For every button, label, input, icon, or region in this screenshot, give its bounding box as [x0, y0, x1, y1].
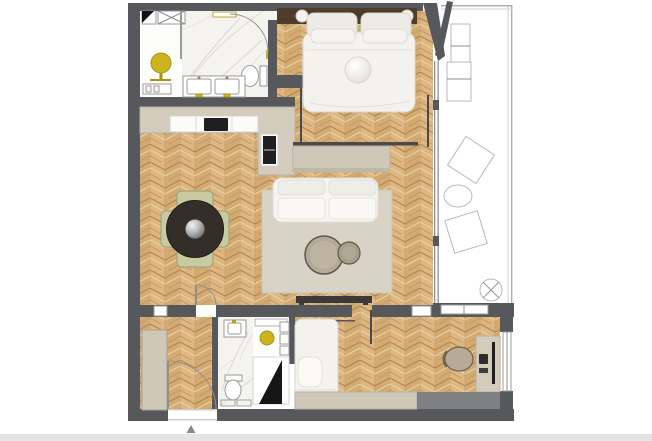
- wall-niche: [154, 306, 167, 316]
- tv-console-foot-left: [299, 303, 304, 305]
- door-gap-bedroom2: [352, 305, 372, 317]
- toilet2: [225, 380, 241, 400]
- coffee-table-small-top: [342, 246, 356, 260]
- cooktop: [204, 118, 228, 131]
- tv-console: [296, 296, 372, 303]
- gold-stool-dressing: [151, 53, 171, 73]
- wall-hall-bath2: [212, 317, 218, 409]
- faucet-left: [198, 77, 201, 80]
- bed-second-pillow: [298, 357, 322, 387]
- pillow-front-left: [311, 29, 355, 43]
- partition-dressing: [180, 11, 182, 59]
- gray-unit: [417, 392, 500, 409]
- dressing-bench-box2: [154, 86, 159, 92]
- oven-handle: [264, 149, 275, 151]
- wall-bath-bedroom: [268, 20, 277, 97]
- bench-cabinet: [295, 392, 417, 409]
- glass-wall-outer: [434, 61, 435, 303]
- sofa-seat-right: [329, 198, 376, 219]
- laptop: [479, 354, 488, 364]
- wall-middle: [140, 305, 433, 317]
- round-side-table: [444, 185, 472, 207]
- sliding-track-right: [427, 95, 429, 147]
- gold-accent-1: [196, 94, 202, 97]
- glass-mullion-2: [433, 236, 439, 246]
- wall-shelf-2: [280, 334, 289, 344]
- glass-mullion-1: [433, 100, 439, 110]
- sink-gold-dot: [233, 320, 236, 323]
- entry-door-leaf: [167, 361, 169, 409]
- keyboard: [479, 368, 488, 373]
- stool-base: [150, 79, 171, 81]
- dressing-bench-box1: [146, 86, 151, 92]
- glass-wall-inner: [438, 61, 439, 303]
- coffee-table-large-top: [310, 241, 338, 269]
- sliding-track-left: [300, 88, 302, 146]
- toilet-tank: [260, 66, 267, 86]
- entry-wardrobe: [142, 330, 167, 410]
- wall-left: [128, 3, 140, 421]
- footer-strip: [0, 434, 652, 441]
- monitor: [492, 342, 495, 384]
- north-marker: [187, 425, 196, 433]
- sink-second-bowl: [228, 323, 241, 334]
- entry-threshold-top: [168, 409, 217, 411]
- door-leaf-bedroom2: [370, 310, 372, 344]
- sphere-centerpiece: [186, 220, 205, 239]
- door-gap-bathroom-main: [268, 11, 277, 20]
- wall-vestibule-bedroom2: [289, 317, 295, 364]
- sofa-back-left: [278, 180, 325, 195]
- wall-bath-kitchen: [140, 97, 295, 107]
- gold-accent-2: [224, 94, 230, 97]
- wall-pass-through: [412, 306, 431, 316]
- sink-right: [215, 79, 239, 94]
- wall-right-bottom: [500, 391, 513, 409]
- bedside-lamp-left: [296, 10, 308, 22]
- partition-line: [293, 142, 418, 146]
- floor-plan: [0, 0, 652, 441]
- interior-door-leaf: [195, 285, 197, 305]
- railing-right-inner: [508, 5, 509, 306]
- wall-shelf-3: [280, 346, 289, 355]
- console-shadow: [293, 168, 390, 172]
- sofa-seat-left: [278, 198, 325, 219]
- floor-plan-page: [0, 0, 652, 441]
- desk-chair: [445, 347, 473, 371]
- wall-bedroom-pillar: [277, 75, 303, 88]
- round-cushion: [345, 57, 371, 83]
- sofa-back-right: [329, 180, 376, 195]
- tv-console-foot-right: [363, 303, 368, 305]
- lounge-chair-seat: [447, 62, 471, 101]
- railing-right: [511, 5, 512, 306]
- sink-left: [187, 79, 211, 94]
- railing-top-inner: [441, 9, 512, 10]
- entry-threshold-bottom: [168, 419, 217, 421]
- gold-towel-bar: [266, 50, 268, 59]
- faucet-right: [226, 77, 229, 80]
- wall-shelf-1: [280, 322, 289, 332]
- door-gap-living: [196, 305, 216, 317]
- gold-stool-vestibule: [260, 331, 274, 345]
- lounge-chair-back: [451, 24, 470, 62]
- stool-stem: [160, 73, 163, 79]
- wall-right-top: [500, 317, 513, 332]
- pillow-front-right: [363, 29, 407, 43]
- desk: [476, 336, 500, 392]
